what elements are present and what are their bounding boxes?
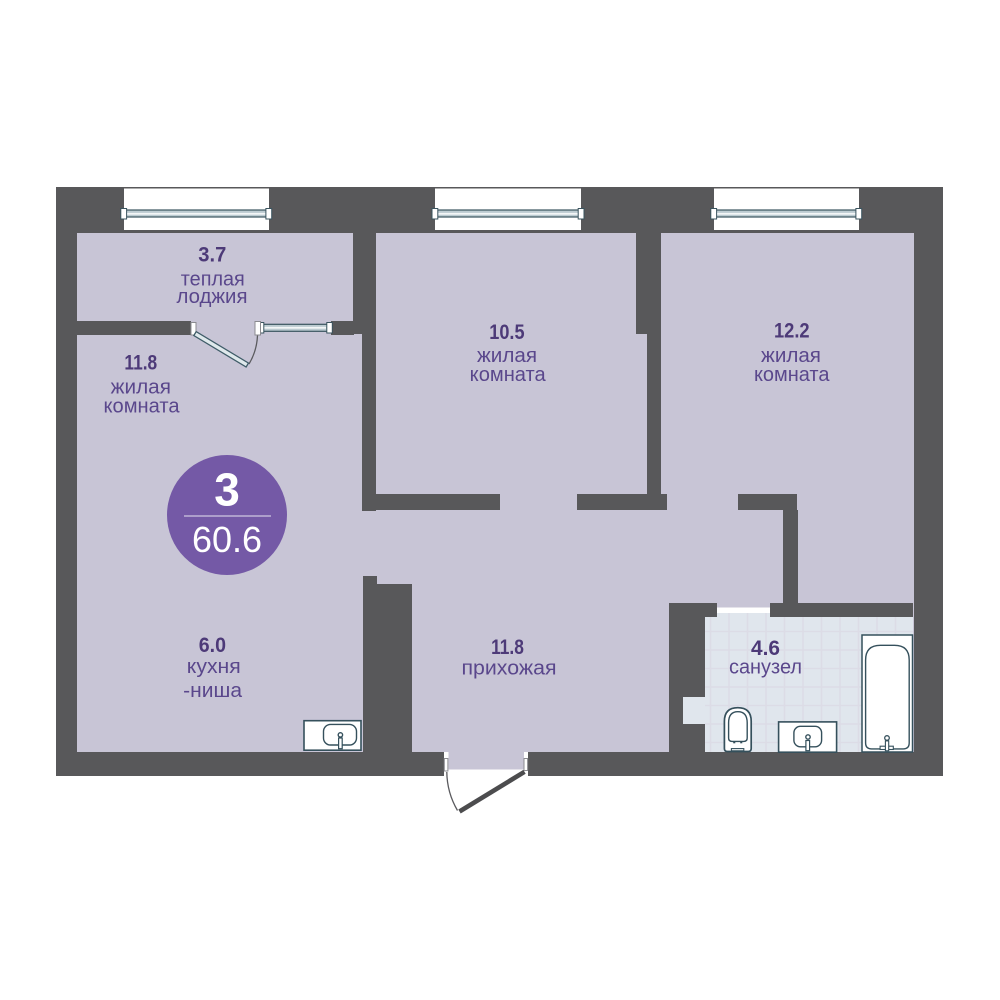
svg-text:прихожая: прихожая xyxy=(462,657,557,679)
svg-text:6.0: 6.0 xyxy=(199,633,226,657)
svg-text:11.8: 11.8 xyxy=(124,351,157,375)
svg-text:3.7: 3.7 xyxy=(198,243,226,267)
svg-text:лоджия: лоджия xyxy=(177,286,248,308)
svg-text:10.5: 10.5 xyxy=(489,320,524,344)
svg-text:11.8: 11.8 xyxy=(491,635,524,659)
svg-text:комната: комната xyxy=(470,364,547,386)
svg-text:3: 3 xyxy=(214,464,240,516)
svg-text:60.6: 60.6 xyxy=(192,519,262,560)
svg-text:комната: комната xyxy=(754,364,830,386)
svg-text:-ниша: -ниша xyxy=(183,680,243,702)
svg-text:12.2: 12.2 xyxy=(774,319,810,343)
svg-text:санузел: санузел xyxy=(729,657,802,679)
svg-text:кухня: кухня xyxy=(187,656,241,678)
svg-text:комната: комната xyxy=(104,396,181,418)
